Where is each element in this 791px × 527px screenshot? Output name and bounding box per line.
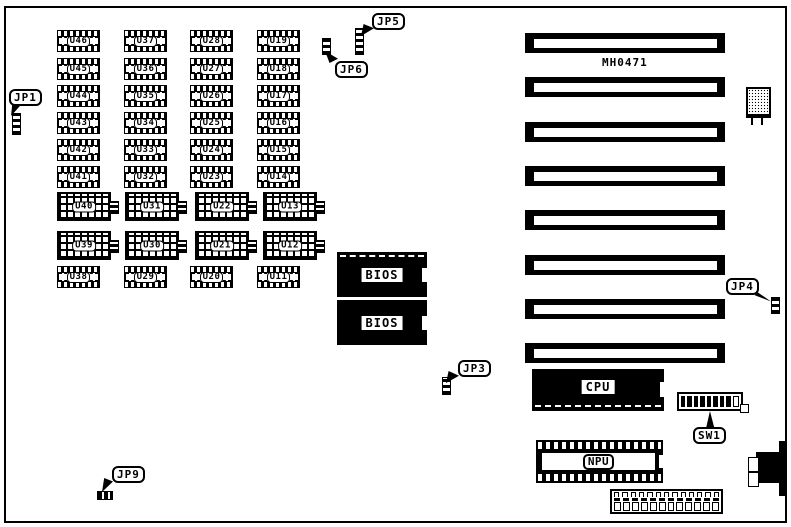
crystal-leg <box>761 117 763 125</box>
chip-label: U27 <box>200 64 224 75</box>
switch-position <box>694 396 698 407</box>
chip-band: U19 <box>259 37 298 45</box>
chip-label: U15 <box>267 145 291 156</box>
dip-chip-wide: U31 <box>125 192 179 221</box>
dip-chip: U28 <box>190 30 233 52</box>
chip-notch-line <box>340 255 424 257</box>
dip-chip: U36 <box>124 58 167 80</box>
dip-chip: U24 <box>190 139 233 161</box>
dip-chip: U46 <box>57 30 100 52</box>
chip-band: U29 <box>126 273 165 281</box>
dip-chip: U38 <box>57 266 100 288</box>
chip-band: U41 <box>59 173 98 181</box>
switch-position <box>733 396 739 407</box>
chip-label: U20 <box>200 272 224 283</box>
expansion-slot <box>525 166 725 186</box>
chip-band: U44 <box>59 92 98 100</box>
dip-chip: U18 <box>257 58 300 80</box>
chip-band: U36 <box>126 65 165 73</box>
dip-chip: U43 <box>57 112 100 134</box>
chip-label: U14 <box>267 172 291 183</box>
jp1-jumper <box>12 113 21 135</box>
dip-chip: U27 <box>190 58 233 80</box>
switch-position <box>720 396 724 407</box>
chip-label: U38 <box>67 272 91 283</box>
keyboard-connector-pin <box>748 457 759 472</box>
board-model-label: MH0471 <box>602 56 648 69</box>
chip-label: U19 <box>267 36 291 47</box>
motherboard-diagram: U46 U45 U44 U43 U42 U41 U40 U39 U38 U37 … <box>0 0 791 527</box>
chip-label: U41 <box>67 172 91 183</box>
chip-label: U17 <box>267 91 291 102</box>
dip-chip: U26 <box>190 85 233 107</box>
dip-chip: U34 <box>124 112 167 134</box>
dip-chip: U20 <box>190 266 233 288</box>
dip-chip-wide: U12 <box>263 231 317 260</box>
switch-corner-pad <box>740 404 749 413</box>
expansion-slot <box>525 255 725 275</box>
expansion-slot <box>525 33 725 53</box>
chip-band: U43 <box>59 119 98 127</box>
chip-band: U42 <box>59 146 98 154</box>
chip-band: U32 <box>126 173 165 181</box>
chip-label: U12 <box>278 240 302 251</box>
dip-chip: U44 <box>57 85 100 107</box>
expansion-slot <box>525 210 725 230</box>
jp6-callout: JP6 <box>335 61 368 78</box>
dip-chip: U35 <box>124 85 167 107</box>
chip-label: U18 <box>267 64 291 75</box>
chip-label: U33 <box>134 145 158 156</box>
dip-chip: U33 <box>124 139 167 161</box>
chip-notch <box>422 268 427 282</box>
chip-band: U35 <box>126 92 165 100</box>
jp4-callout: JP4 <box>726 278 759 295</box>
dip-chip-wide: U22 <box>195 192 249 221</box>
expansion-slot <box>525 343 725 363</box>
switch-position <box>700 396 704 407</box>
pin-row-icon <box>614 492 719 497</box>
bios-label: BIOS <box>362 316 403 330</box>
chip-label: U32 <box>134 172 158 183</box>
chip-notch <box>660 382 664 397</box>
chip-label: U16 <box>267 118 291 129</box>
jp4-jumper <box>771 297 780 314</box>
jp3-callout: JP3 <box>458 360 491 377</box>
chip-band: U34 <box>126 119 165 127</box>
chip-label: U21 <box>210 240 234 251</box>
chip-band: U38 <box>59 273 98 281</box>
crystal-oscillator-icon <box>746 87 771 118</box>
socket-row <box>614 502 719 511</box>
switch-position <box>713 396 717 407</box>
dip-chip: U17 <box>257 85 300 107</box>
keyboard-connector-body <box>756 452 779 483</box>
switch-position <box>726 396 730 407</box>
dip-chip: U19 <box>257 30 300 52</box>
crystal-leg <box>751 117 753 125</box>
chip-label: U42 <box>67 145 91 156</box>
chip-label: U25 <box>200 118 224 129</box>
chip-label: U46 <box>67 36 91 47</box>
chip-label: U22 <box>210 201 234 212</box>
chip-band: U33 <box>126 146 165 154</box>
dip-chip: U23 <box>190 166 233 188</box>
dip-chip: U11 <box>257 266 300 288</box>
chip-label: U43 <box>67 118 91 129</box>
chip-label: U37 <box>134 36 158 47</box>
chip-label: U26 <box>200 91 224 102</box>
keyboard-connector-pin <box>748 472 759 487</box>
jp1-callout: JP1 <box>9 89 42 106</box>
jp9-callout: JP9 <box>112 466 145 483</box>
chip-notch <box>422 316 427 330</box>
chip-band: U45 <box>59 65 98 73</box>
dip-chip: U41 <box>57 166 100 188</box>
chip-band: U25 <box>192 119 231 127</box>
chip-label: U35 <box>134 91 158 102</box>
chip-band: U24 <box>192 146 231 154</box>
chip-label: U29 <box>134 272 158 283</box>
chip-label: U36 <box>134 64 158 75</box>
pin-header-connector <box>610 489 723 514</box>
chip-notch-line <box>535 405 661 407</box>
jp9-jumper <box>97 491 113 500</box>
dip-chip-wide: U39 <box>57 231 111 260</box>
switch-position <box>687 396 691 407</box>
keyboard-connector-edge <box>779 441 786 496</box>
chip-label: U31 <box>140 201 164 212</box>
chip-label: U13 <box>278 201 302 212</box>
chip-band: U28 <box>192 37 231 45</box>
chip-band: U46 <box>59 37 98 45</box>
dip-chip: U37 <box>124 30 167 52</box>
chip-label: U30 <box>140 240 164 251</box>
dip-chip: U16 <box>257 112 300 134</box>
chip-label: U23 <box>200 172 224 183</box>
pin-row-icon <box>538 442 661 449</box>
chip-label: U11 <box>267 272 291 283</box>
switch-position <box>707 396 711 407</box>
cpu-chip: CPU <box>532 369 664 411</box>
pin-row-icon <box>614 498 719 501</box>
jp5-callout: JP5 <box>372 13 405 30</box>
dip-switch-sw1 <box>677 392 743 411</box>
chip-band: U16 <box>259 119 298 127</box>
dip-chip-wide: U13 <box>263 192 317 221</box>
chip-band: U37 <box>126 37 165 45</box>
pin-row-icon <box>538 474 661 481</box>
expansion-slot <box>525 77 725 97</box>
chip-band: U14 <box>259 173 298 181</box>
chip-notch <box>659 455 663 468</box>
chip-label: U28 <box>200 36 224 47</box>
dip-chip: U29 <box>124 266 167 288</box>
chip-band: U26 <box>192 92 231 100</box>
chip-label: U40 <box>72 201 96 212</box>
chip-label: U39 <box>72 240 96 251</box>
chip-label: U34 <box>134 118 158 129</box>
chip-band: U20 <box>192 273 231 281</box>
dip-chip-wide: U21 <box>195 231 249 260</box>
cpu-label: CPU <box>582 380 615 394</box>
dip-chip: U45 <box>57 58 100 80</box>
npu-label: NPU <box>583 454 614 470</box>
dip-chip: U32 <box>124 166 167 188</box>
expansion-slot <box>525 122 725 142</box>
dip-chip: U15 <box>257 139 300 161</box>
chip-band: U27 <box>192 65 231 73</box>
chip-band: U18 <box>259 65 298 73</box>
chip-label: U24 <box>200 145 224 156</box>
bios-label: BIOS <box>362 268 403 282</box>
chip-band: U15 <box>259 146 298 154</box>
bios-rom-1: BIOS <box>337 252 427 297</box>
dip-chip: U25 <box>190 112 233 134</box>
dip-chip-wide: U40 <box>57 192 111 221</box>
switch-position <box>681 396 685 407</box>
chip-band: U23 <box>192 173 231 181</box>
chip-band: U17 <box>259 92 298 100</box>
bios-rom-2: BIOS <box>337 300 427 345</box>
chip-label: U45 <box>67 64 91 75</box>
dip-chip: U14 <box>257 166 300 188</box>
chip-label: U44 <box>67 91 91 102</box>
dip-chip-wide: U30 <box>125 231 179 260</box>
expansion-slot <box>525 299 725 319</box>
chip-band: U11 <box>259 273 298 281</box>
sw1-callout: SW1 <box>693 427 726 444</box>
npu-body: NPU <box>540 451 657 472</box>
dip-chip: U42 <box>57 139 100 161</box>
npu-socket: NPU <box>536 440 663 483</box>
